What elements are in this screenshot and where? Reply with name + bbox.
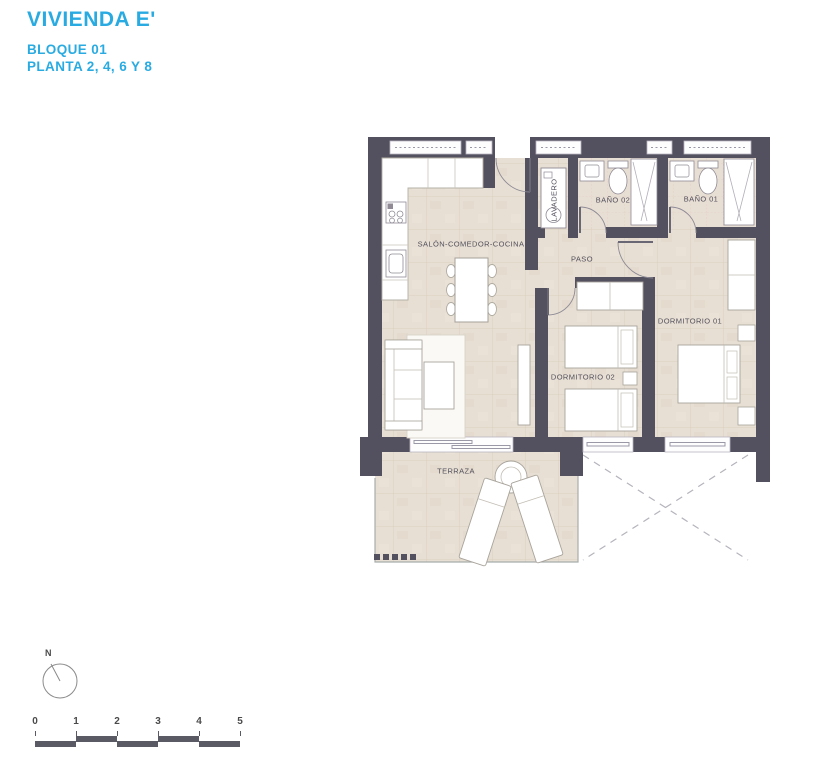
room-label-bano01: BAÑO 01 — [684, 195, 718, 204]
bath-sink-icon — [670, 161, 694, 181]
coffee-table — [424, 362, 454, 409]
room-label-lavadero: LAVADERO — [550, 179, 559, 222]
room-label-terraza: TERRAZA — [437, 467, 475, 476]
scale-bar: 0 1 2 3 4 5 — [30, 716, 246, 752]
bed — [565, 389, 637, 431]
tv-unit — [518, 345, 530, 425]
room-label-paso: PASO — [571, 255, 593, 264]
nightstand — [738, 407, 755, 425]
title-block: VIVIENDA E' BLOQUE 01 PLANTA 2, 4, 6 Y 8 — [27, 8, 156, 75]
dining-table — [447, 258, 497, 322]
stove-icon — [386, 202, 406, 223]
toilet-icon — [608, 161, 628, 194]
shower-icon — [724, 159, 754, 225]
nightstand — [738, 325, 755, 341]
scale-segment — [76, 736, 117, 742]
floor-plan: SALÓN-COMEDOR-COCINA LAVADERO BAÑO 02 BA… — [360, 130, 780, 575]
bath-sink-icon — [580, 161, 604, 181]
north-label: N — [45, 648, 52, 658]
scale-segment — [199, 741, 240, 747]
scale-tick-2: 2 — [114, 716, 120, 727]
kitchen-sink-icon — [386, 250, 406, 277]
room-label-dormitorio01: DORMITORIO 01 — [658, 317, 722, 326]
scale-segment — [158, 736, 199, 742]
room-label-salon: SALÓN-COMEDOR-COCINA — [418, 240, 525, 249]
bedroom02-furniture — [565, 282, 643, 431]
compass: N — [35, 648, 87, 702]
scale-tick-5: 5 — [237, 716, 243, 727]
neighbor-terrace-dashed-x — [583, 455, 748, 560]
scale-tick-0: 0 — [32, 716, 38, 727]
nightstand — [623, 372, 637, 385]
subtitle-block: BLOQUE 01 — [27, 41, 156, 58]
floorplan-page: VIVIENDA E' BLOQUE 01 PLANTA 2, 4, 6 Y 8 — [0, 0, 839, 768]
room-label-bano02: BAÑO 02 — [596, 196, 630, 205]
scale-tick-4: 4 — [196, 716, 202, 727]
scale-segment — [117, 741, 158, 747]
sofa — [385, 340, 422, 430]
bed — [678, 345, 740, 403]
scale-tick-1: 1 — [73, 716, 79, 727]
scale-segment — [35, 741, 76, 747]
compass-icon — [35, 648, 87, 702]
subtitle-floors: PLANTA 2, 4, 6 Y 8 — [27, 58, 156, 75]
bed — [565, 326, 637, 368]
shower-icon — [631, 159, 657, 225]
facade-windows-top — [390, 141, 751, 154]
page-title: VIVIENDA E' — [27, 8, 156, 32]
toilet-icon — [698, 161, 718, 194]
room-label-dormitorio02: DORMITORIO 02 — [551, 373, 615, 382]
scale-tick-3: 3 — [155, 716, 161, 727]
